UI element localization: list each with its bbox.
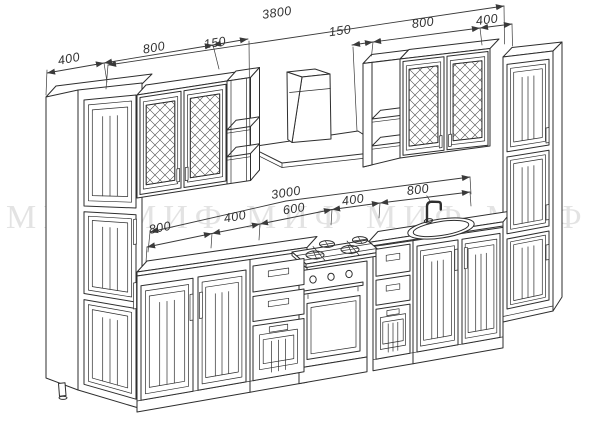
stove: [292, 237, 381, 384]
dim-top-right-400: 400: [475, 12, 499, 27]
door-handle: [546, 205, 549, 221]
dim-top-right-150: 150: [328, 23, 352, 38]
door-handle: [449, 134, 452, 147]
door-handle: [546, 128, 549, 144]
door-handle: [185, 167, 188, 181]
dim-run-800-right: 800: [406, 182, 430, 197]
faucet: [427, 202, 441, 221]
dim-top-right-800: 800: [411, 15, 435, 30]
oven-window: [307, 296, 360, 360]
door-handle: [177, 169, 180, 183]
door-handle: [439, 136, 442, 149]
open-shelf-left: [227, 68, 260, 185]
door-handle: [546, 245, 549, 261]
door-handle: [455, 249, 458, 271]
door-handle: [190, 294, 193, 321]
door-handle: [134, 283, 137, 310]
door-handle: [134, 219, 137, 245]
door-handle: [200, 292, 203, 319]
door-handle: [464, 247, 467, 268]
kitchen-blueprint: МИФ МИФ МИФ МИФ МИФ: [0, 0, 600, 424]
dim-run-400-right: 400: [341, 192, 365, 207]
cabinet-foot: [59, 383, 67, 397]
